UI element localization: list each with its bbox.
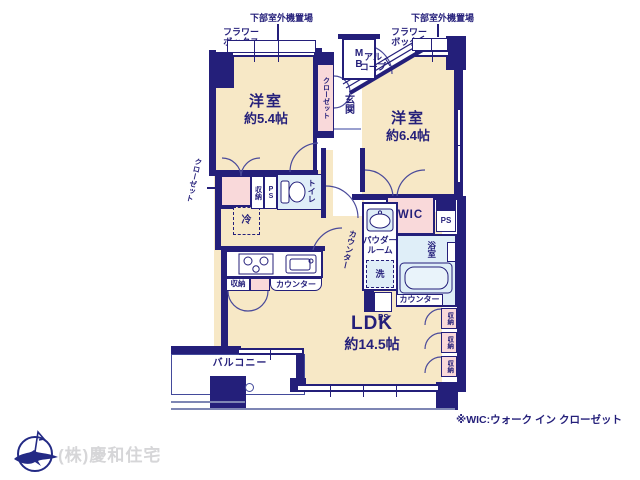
storage-label: 収納 [445, 336, 452, 349]
bedroom1-size: 約5.4帖 [228, 112, 304, 127]
storage-label: 収納 [253, 186, 261, 200]
ldk-name: LDK [322, 313, 422, 334]
wic-label: WIC [398, 209, 423, 222]
closet-leader-line [207, 187, 222, 189]
laundry-space: 洗 [366, 260, 394, 288]
bedroom1-name: 洋室 [230, 93, 302, 110]
closet-label-outside: クローゼット [179, 157, 202, 223]
alcove-label: アル コープ [354, 51, 392, 73]
outdoor-unit-right: 下部室外機置場 [411, 13, 474, 23]
counter-label: カウンター [276, 280, 316, 289]
storage-box: 収納 [441, 332, 457, 353]
storage-label: 収納 [445, 360, 452, 373]
kitchen-sink-icon [285, 254, 317, 274]
toilet-label: トイレ [307, 179, 316, 209]
window [456, 110, 462, 182]
flower-box-right [412, 38, 448, 51]
pipe-space-box: PS [436, 210, 456, 232]
kitchen-counter-tag: カウンター [270, 278, 322, 291]
wall-segment [360, 148, 365, 192]
storage-box: 収納 [441, 356, 457, 377]
bath-panel [447, 242, 456, 262]
toilet-icon [280, 178, 306, 206]
wic-note: ※WIC:ウォーク イン クローゼット [456, 414, 622, 426]
pipe-space-box: PS [264, 176, 277, 209]
entrance-label: 玄関 [342, 94, 354, 124]
wall-segment [171, 346, 241, 354]
storage-label: 収納 [231, 280, 246, 289]
balcony-drain [245, 383, 254, 392]
balcony-rail [171, 408, 455, 410]
bath-counter: カウンター [396, 294, 443, 306]
floorplan-page: { "colors": { "wall": "#241f7a", "room_f… [0, 0, 640, 480]
bedroom2-name: 洋室 [372, 110, 444, 127]
laundry-label: 洗 [375, 269, 384, 279]
pipe-space-label: PS [266, 186, 274, 200]
balcony-label: バルコニー [198, 357, 282, 370]
outdoor-unit-left: 下部室外機置場 [250, 13, 313, 23]
wall-segment [457, 196, 466, 392]
closet-bedroom1 [221, 176, 251, 206]
stove-icon [238, 253, 274, 275]
storage-label: 収納 [445, 312, 452, 325]
closet-label: クローゼット [321, 77, 329, 119]
wall-segment [436, 382, 458, 410]
refrigerator-label: 冷 [242, 215, 252, 227]
ldk-size: 約14.5帖 [322, 336, 422, 352]
hall-floor [333, 56, 362, 216]
balcony-rail [171, 401, 245, 403]
storage-box: 収納 [441, 308, 457, 329]
refrigerator-space: 冷 [233, 207, 260, 235]
wall-segment [209, 50, 216, 176]
powder-room-label: パウダー ルーム [362, 234, 398, 258]
storage-box: 収納 [251, 176, 264, 209]
wall-segment [364, 288, 374, 312]
closet-entrance: クローゼット [317, 64, 334, 132]
company-logo-bird-icon [10, 428, 62, 476]
wall-segment [436, 198, 456, 210]
wall-segment [317, 132, 334, 138]
flower-box-left [227, 40, 316, 53]
bathtub-icon [399, 262, 453, 294]
pipe-space-small [374, 292, 392, 312]
company-name: (株)慶和住宅 [58, 446, 161, 466]
bedroom2-size: 約6.4帖 [370, 129, 446, 144]
window-ldk [298, 384, 438, 392]
balcony-pillar [210, 376, 246, 408]
sink-icon [366, 208, 394, 232]
entrance-step-line [334, 128, 361, 130]
pipe-space-label: PS [441, 216, 452, 225]
kitchen-storage-box: 収納 [226, 278, 250, 291]
counter-label: カウンター [400, 295, 440, 304]
kitchen-pink-cabinet [250, 278, 270, 291]
